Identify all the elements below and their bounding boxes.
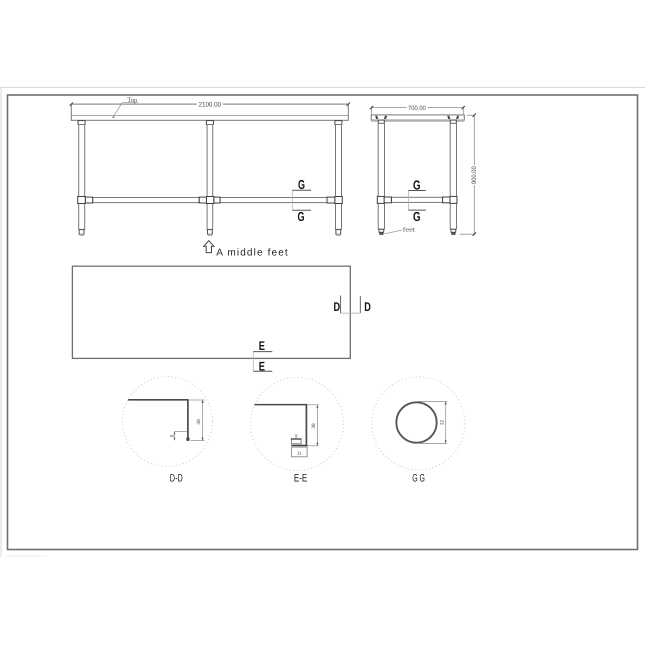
svg-text:E-E: E-E: [294, 472, 307, 484]
svg-text:2100.00: 2100.00: [199, 101, 222, 108]
svg-text:G: G: [412, 472, 417, 484]
svg-text:G: G: [420, 472, 425, 484]
svg-text:E: E: [259, 339, 265, 353]
svg-text:G: G: [413, 209, 421, 224]
svg-text:38: 38: [196, 419, 202, 425]
svg-text:700.00: 700.00: [408, 105, 426, 112]
svg-text:38: 38: [311, 423, 317, 429]
svg-text:900.00: 900.00: [471, 166, 478, 184]
svg-text:feet: feet: [403, 226, 416, 233]
svg-text:32: 32: [440, 419, 446, 425]
svg-text:D: D: [364, 300, 371, 314]
svg-text:11: 11: [297, 451, 302, 456]
svg-text:G: G: [413, 177, 421, 192]
svg-text:D: D: [334, 300, 341, 314]
svg-text:E: E: [259, 359, 265, 373]
svg-text:D-D: D-D: [170, 472, 183, 484]
svg-text:Top: Top: [127, 97, 138, 104]
svg-text:G: G: [298, 209, 305, 224]
svg-text:G: G: [298, 177, 305, 192]
svg-text:9: 9: [170, 434, 176, 437]
